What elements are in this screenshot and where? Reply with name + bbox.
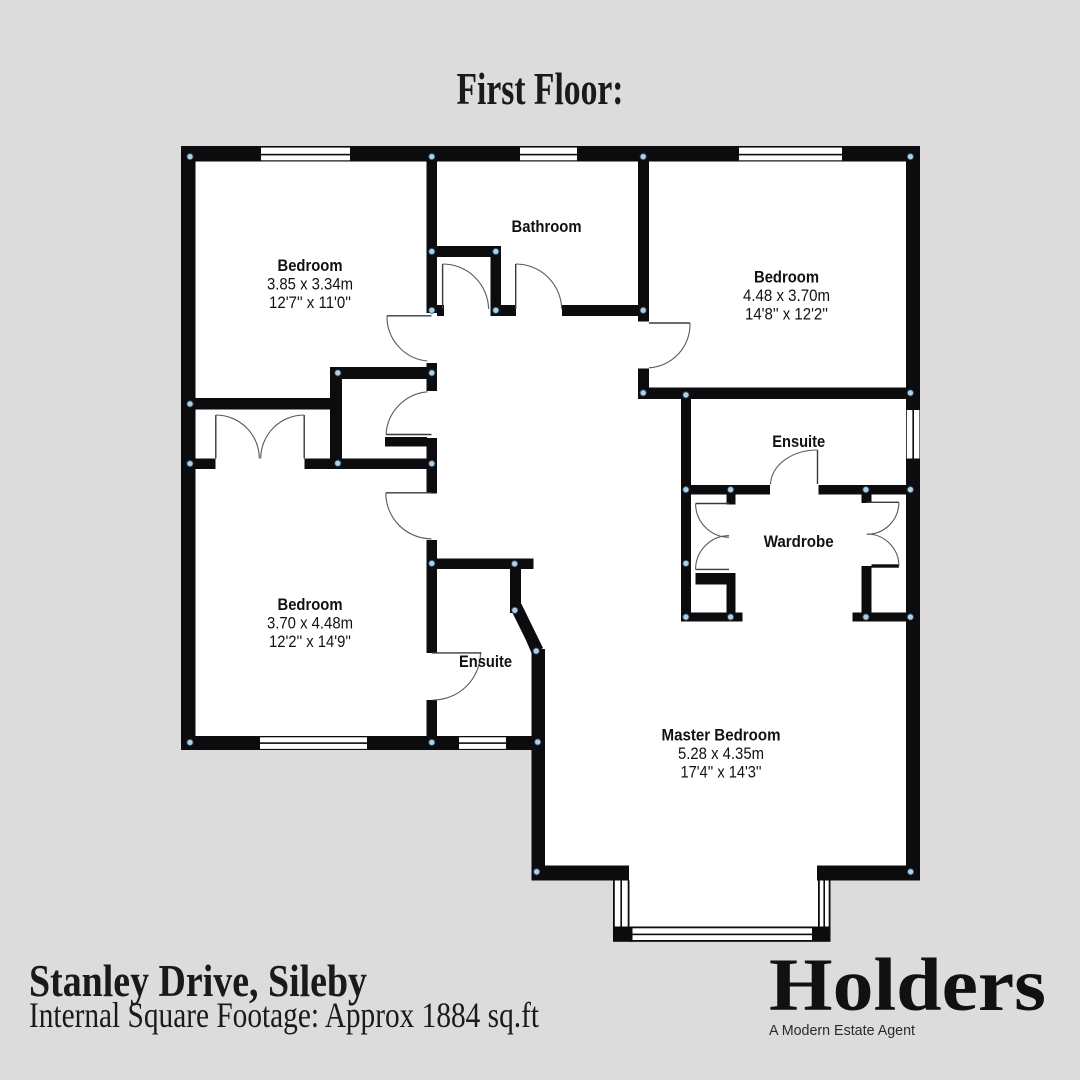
svg-text:12'2'' x 14'9'': 12'2'' x 14'9'' [269,633,351,651]
svg-text:Internal Square Footage: Appro: Internal Square Footage: Approx 1884 sq.… [29,995,539,1035]
svg-text:4.48 x 3.70m: 4.48 x 3.70m [743,287,830,305]
svg-text:First Floor:: First Floor: [457,64,624,114]
svg-text:Bedroom: Bedroom [278,256,343,275]
svg-text:Holders: Holders [769,944,1046,1027]
svg-text:5.28 x 4.35m: 5.28 x 4.35m [678,745,764,763]
svg-text:Bathroom: Bathroom [512,217,582,236]
svg-text:Wardrobe: Wardrobe [764,532,834,551]
svg-text:17'4'' x 14'3'': 17'4'' x 14'3'' [681,764,762,782]
svg-text:3.85 x 3.34m: 3.85 x 3.34m [267,276,353,294]
svg-text:Master Bedroom: Master Bedroom [662,726,781,745]
svg-text:Ensuite: Ensuite [459,652,512,671]
svg-text:14'8'' x 12'2'': 14'8'' x 12'2'' [745,306,828,324]
svg-text:Bedroom: Bedroom [278,595,343,614]
svg-text:3.70 x 4.48m: 3.70 x 4.48m [267,615,353,633]
svg-text:Bedroom: Bedroom [754,268,819,287]
svg-text:12'7'' x 11'0'': 12'7'' x 11'0'' [269,294,351,312]
svg-text:Ensuite: Ensuite [772,432,825,451]
svg-text:A Modern Estate Agent: A Modern Estate Agent [769,1022,916,1039]
